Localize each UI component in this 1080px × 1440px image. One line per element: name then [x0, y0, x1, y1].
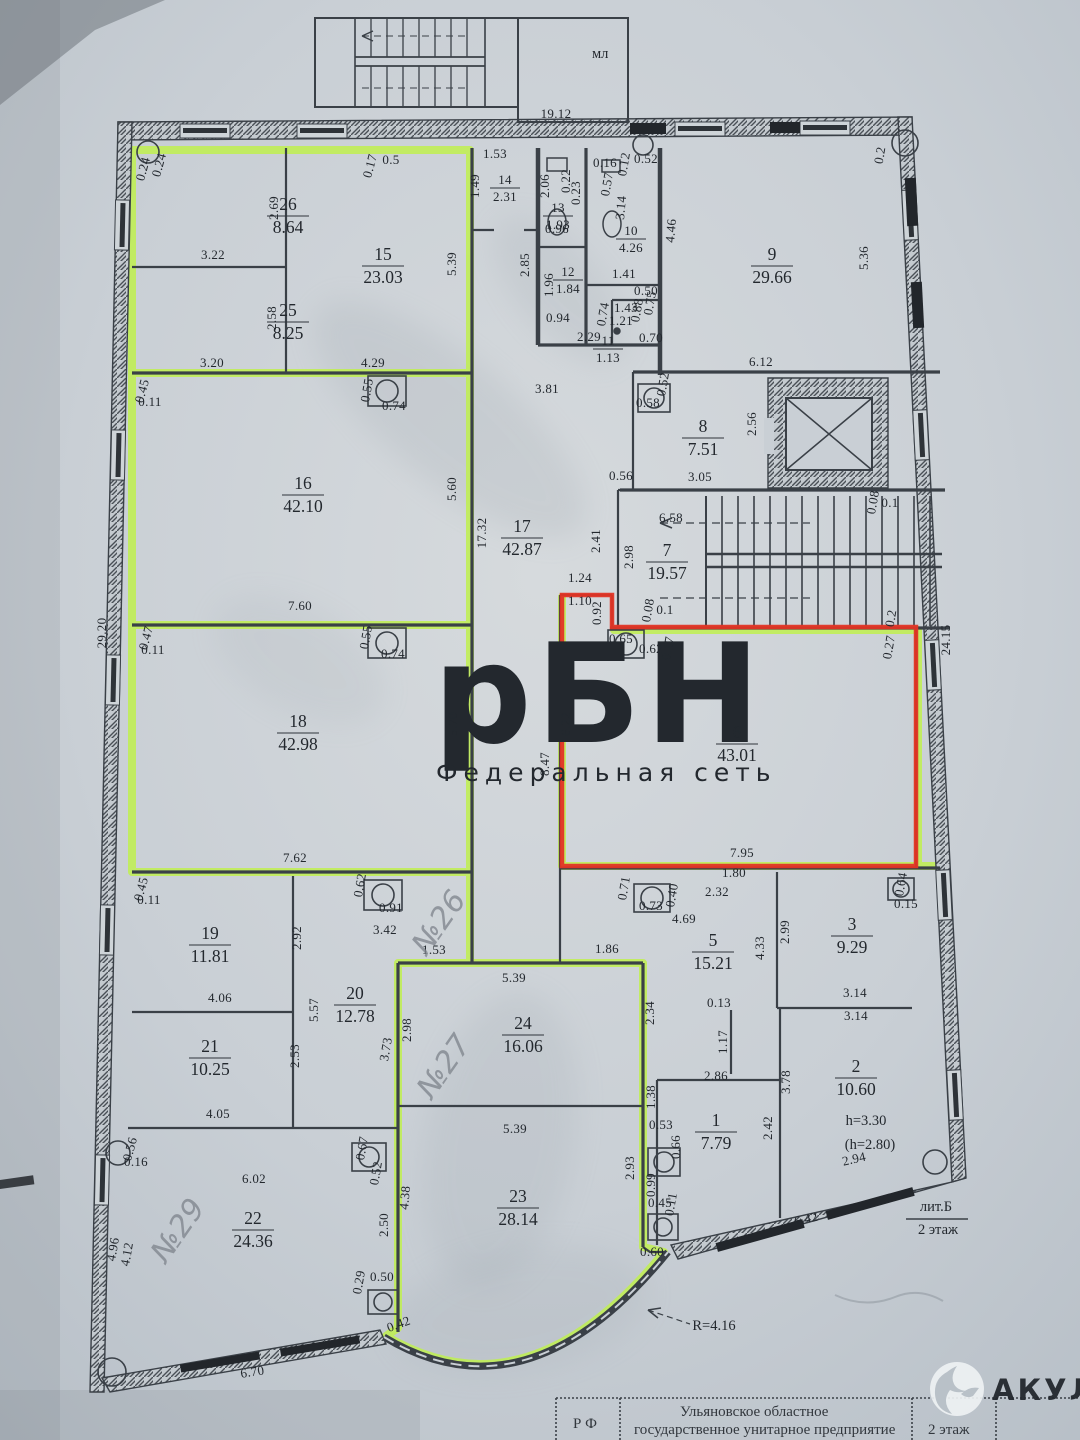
room-number: 11: [601, 333, 614, 348]
dimension-label: 8.47: [537, 752, 552, 776]
annotation-label: лит.Б: [920, 1199, 952, 1215]
dimension-label: 0.60: [640, 1244, 664, 1259]
title-block-floor: 2 этаж: [928, 1422, 970, 1438]
dimension-label: 0.94: [546, 310, 570, 325]
dimension-label: 0.5: [382, 152, 399, 167]
dimension-label: 2.86: [704, 1068, 728, 1083]
room-number: 26: [279, 194, 297, 214]
dimension-label: 0.11: [137, 892, 160, 907]
room-number: 12: [561, 264, 575, 279]
room-area: 1.93: [546, 217, 570, 232]
title-block-rf: Р Ф: [573, 1416, 597, 1432]
dimension-label: 0.58: [636, 395, 660, 410]
stair-label: мл: [592, 46, 608, 62]
annotation-label: R=4.16: [692, 1318, 735, 1334]
dimension-label: 5.70: [445, 712, 460, 736]
dimension-label: 1.86: [595, 941, 619, 956]
dimension-label: 7.60: [288, 598, 312, 613]
room-number: 3: [848, 914, 857, 934]
dimension-label: 4.05: [206, 1106, 230, 1121]
dimension-label: 3.05: [688, 469, 712, 484]
dimension-label: 1.24: [568, 570, 592, 585]
room-number: 1: [712, 1110, 721, 1130]
dimension-label: 2.92: [289, 926, 304, 950]
dimension-label: 0.15: [894, 896, 918, 911]
room-area: 10.25: [190, 1059, 230, 1079]
dimension-label: 5.57: [306, 998, 321, 1022]
dimension-label: 2.98: [621, 545, 636, 569]
dimension-label: 2.42: [760, 1116, 775, 1140]
room-number: 24: [514, 1013, 532, 1033]
room-number: 19: [201, 923, 219, 943]
room-number: 14: [498, 172, 512, 187]
dimension-label: 1.49: [467, 174, 482, 198]
room-number: 23: [509, 1186, 527, 1206]
elevator-shaft: [764, 378, 888, 488]
dimension-label: 0.74: [381, 646, 405, 661]
dimension-label: 2.85: [517, 253, 532, 277]
dimension-label: 0.2: [882, 608, 900, 628]
dimension-label: 6.12: [749, 354, 773, 369]
room-number: 10: [624, 223, 638, 238]
dimension-label: 3.14: [612, 195, 629, 220]
dimension-label: 7.62: [283, 850, 307, 865]
room-area: 9.29: [837, 937, 868, 957]
room-area: 8.64: [273, 217, 304, 237]
floorplan-photo: рБН Федеральная сеть Р Ф Ульяновское обл…: [0, 0, 1080, 1440]
dimension-label: 0.99: [643, 1173, 658, 1197]
dimension-label: 3.14: [843, 985, 867, 1000]
room-area: 15.21: [693, 953, 732, 973]
watermark-title: рБН: [433, 614, 764, 775]
dimension-label: 0.23: [568, 181, 583, 205]
dimension-label: 7.95: [730, 845, 754, 860]
dimension-label: 0.50: [634, 283, 658, 298]
room-area: 42.10: [283, 496, 323, 516]
room-number: 25: [279, 300, 297, 320]
dimension-label: 3.78: [778, 1070, 793, 1094]
room-area: 11.81: [191, 946, 230, 966]
room-number: 20: [346, 983, 364, 1003]
dimension-label: 24.15: [938, 625, 953, 656]
dimension-label: 0.91: [379, 900, 403, 915]
dimension-label: 2.93: [622, 1156, 637, 1180]
dimension-label: 5.39: [502, 970, 526, 985]
dimension-label: 5.39: [503, 1121, 527, 1136]
dimension-label: 0.56: [609, 468, 633, 483]
room-area: 8.25: [273, 323, 304, 343]
room-area: 2.31: [493, 189, 517, 204]
dimension-label: 3.81: [535, 381, 559, 396]
dimension-label: 0.1: [656, 602, 673, 617]
room-number: 22: [244, 1208, 262, 1228]
title-block-line1: Ульяновское областное: [680, 1404, 829, 1420]
room-area: 28.14: [498, 1209, 538, 1229]
dimension-label: 0.73: [639, 898, 663, 913]
dimension-label: 0.65: [609, 631, 633, 646]
dimension-label: 3.20: [200, 355, 224, 370]
dimension-label: 2.32: [705, 884, 729, 899]
dimension-label: 3.42: [373, 922, 397, 937]
dimension-label: 5.39: [444, 252, 459, 276]
dimension-label: 6.22: [558, 712, 573, 736]
dimension-label: 2.06: [537, 174, 552, 198]
dimension-label: 3.14: [844, 1008, 868, 1023]
dimension-label: 29.20: [94, 618, 109, 649]
room-number: 16: [294, 473, 312, 493]
room-area: 29.66: [752, 267, 792, 287]
room-number: 21: [201, 1036, 219, 1056]
dimension-label: 4.38: [396, 1185, 413, 1210]
dimension-label: 0.66: [668, 1135, 683, 1159]
dimension-label: 1.41: [612, 266, 636, 281]
room-area: 42.98: [278, 734, 318, 754]
floorplan-drawing: рБН Федеральная сеть Р Ф Ульяновское обл…: [0, 0, 1080, 1440]
dimension-label: 2.53: [287, 1044, 302, 1068]
dimension-label: 2.99: [777, 920, 792, 944]
dimension-label: 2.98: [399, 1018, 414, 1042]
room-number: 5: [709, 930, 718, 950]
dimension-label: 2.50: [376, 1213, 391, 1237]
dimension-label: 6.58: [659, 510, 683, 525]
room-area: 24.36: [233, 1231, 273, 1251]
room-area: 16.06: [503, 1036, 543, 1056]
dimension-label: 3.22: [201, 247, 225, 262]
room-number: 9: [768, 244, 777, 264]
room-area: 43.01: [717, 745, 756, 765]
dimension-label: 2.34: [642, 1001, 657, 1025]
annotation-label: 2 этаж: [918, 1222, 959, 1238]
room-number: 7: [663, 540, 672, 560]
dimension-label: 5.36: [856, 246, 871, 270]
room-area: 7.79: [701, 1133, 732, 1153]
dimension-label: 0.70: [639, 330, 663, 345]
brand-name: АКУЛА: [992, 1373, 1080, 1407]
dimension-label: 2.56: [744, 412, 759, 436]
dimension-label: 0.16: [124, 1154, 148, 1169]
room-number: 13: [551, 200, 565, 215]
dimension-label: 1.38: [643, 1085, 658, 1109]
dimension-label: 2.41: [588, 529, 603, 553]
dimension-label: 1.96: [541, 273, 556, 297]
dimension-label: 0.50: [370, 1269, 394, 1284]
dimension-label: 17.32: [474, 518, 489, 549]
room-area: 19.57: [647, 563, 687, 583]
room-number: 15: [374, 244, 392, 264]
dimension-label: 0.1: [881, 495, 898, 510]
room-area: 23.03: [363, 267, 403, 287]
room-number: 6: [733, 722, 742, 742]
room-area: 10.60: [836, 1079, 876, 1099]
dimension-label: 1.53: [483, 146, 507, 161]
dimension-label: 0.16: [593, 155, 617, 170]
dimension-label: 4.33: [752, 936, 767, 960]
dimension-label: 0.92: [589, 601, 604, 625]
dimension-label: 0.11: [138, 394, 161, 409]
dimension-label: 0.2: [871, 145, 889, 165]
dimension-label: 4.69: [672, 911, 696, 926]
dimension-label: 19.12: [541, 106, 572, 121]
room-number: 18: [289, 711, 307, 731]
room-area: 42.87: [502, 539, 542, 559]
room-number: 8: [699, 416, 708, 436]
dimension-label: 0.53: [649, 1117, 673, 1132]
dimension-label: 5.60: [444, 477, 459, 501]
room-number: 2: [852, 1056, 861, 1076]
dimension-label: 0.74: [382, 398, 406, 413]
room-area: 1.84: [556, 281, 580, 296]
dimension-label: 4.29: [361, 355, 385, 370]
room-number: 17: [513, 516, 531, 536]
dimension-label: 0.13: [707, 995, 731, 1010]
room-area: 1.13: [596, 350, 620, 365]
dimension-label: 4.46: [662, 218, 679, 243]
room-area: 4.26: [619, 240, 643, 255]
annotation-label: (h=2.80): [845, 1137, 896, 1153]
dimension-label: 4.06: [208, 990, 232, 1005]
dimension-label: 1.17: [715, 1030, 730, 1054]
dimension-label: 0.11: [141, 642, 164, 657]
annotation-label: h=3.30: [846, 1113, 887, 1129]
dimension-label: 6.02: [242, 1171, 266, 1186]
dimension-label: 0.52: [634, 151, 658, 166]
room-area: 7.51: [688, 439, 719, 459]
title-block-line2: государственное унитарное предприятие: [634, 1422, 896, 1438]
dimension-label: 1.80: [722, 865, 746, 880]
room-area: 12.78: [335, 1006, 375, 1026]
dimension-label: 2.29: [577, 329, 601, 344]
